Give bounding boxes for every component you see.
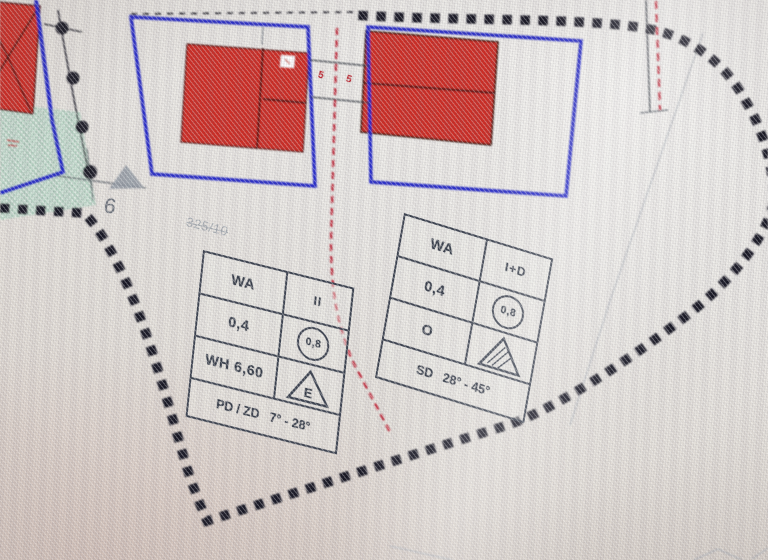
plan-canvas [0, 0, 768, 560]
svg-text:E: E [303, 384, 313, 401]
limit-inner-tick [262, 27, 263, 45]
red-axis-right [656, 1, 660, 110]
gap-lines [310, 60, 370, 103]
gfz-circle-badge: 0,8 [296, 323, 332, 364]
right-axis-foot-tick [640, 110, 668, 113]
right-axis-black-line [646, 0, 650, 112]
roof-texture [0, 0, 40, 114]
bauweise-triangle-icon: E [285, 362, 334, 410]
plan-photo: 6 325/10 5 5 WA II 0,4 0,8 WH 6,60 E PD … [0, 0, 768, 560]
gfz-circle-badge: 0,8 [490, 291, 527, 333]
top-thin-dashed-line [131, 12, 360, 14]
survey-triangle-marker [109, 165, 144, 189]
